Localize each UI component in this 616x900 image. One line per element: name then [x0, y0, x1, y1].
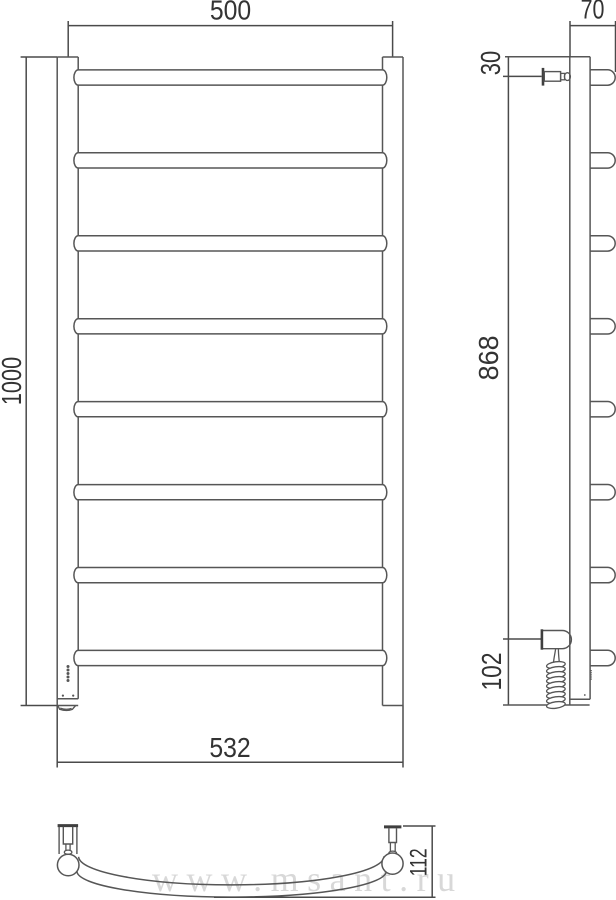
- svg-text:868: 868: [473, 335, 504, 380]
- svg-text:112: 112: [406, 848, 432, 876]
- svg-text:532: 532: [209, 732, 250, 764]
- svg-text:30: 30: [476, 51, 507, 75]
- svg-text:102: 102: [477, 652, 507, 690]
- svg-text:70: 70: [581, 0, 605, 25]
- svg-text:500: 500: [210, 0, 251, 26]
- svg-text:1000: 1000: [0, 357, 28, 405]
